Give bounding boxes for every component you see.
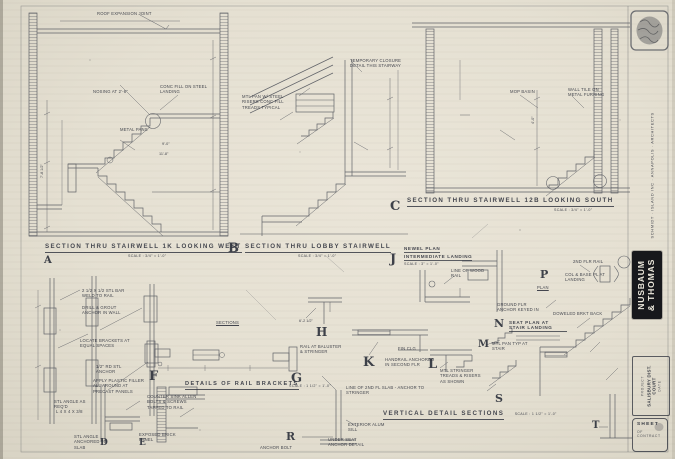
section-letter-a: A bbox=[44, 255, 52, 266]
architects-credit: SCHMIDT · ISLAND INC · ANNAPOLIS · ARCHI… bbox=[650, 127, 655, 239]
note-counter-sink: COUNTER SINK ALLEN BOLTS & SCREWS TAPPED… bbox=[147, 394, 199, 410]
dim-a-run2: 11'-8" bbox=[159, 152, 168, 156]
detail-letter-r: R bbox=[286, 430, 295, 443]
note-wall-tile: WALL TILE ON METAL FURRING bbox=[568, 87, 614, 98]
note-metal-pans: METAL PANS bbox=[120, 127, 154, 132]
note-rail-baluster: RAIL AT BALUSTER & STRINGER bbox=[300, 344, 342, 355]
note-locate-brackets: LOCATE BRACKETS AT EQUAL SPACES bbox=[80, 338, 130, 349]
section-letter-b: B bbox=[228, 241, 239, 256]
detail-letter-h: H bbox=[316, 325, 327, 339]
project-label: PROJECT bbox=[641, 358, 645, 414]
detail-letter-n: N bbox=[494, 317, 504, 330]
note-stl-bar: 2 1/2 x 1/2 STL BAR WELD TO RAIL bbox=[82, 288, 132, 299]
project-block: PROJECT SALISBURY DIST. COURT DATE bbox=[632, 356, 670, 416]
drawing-sheet: A SECTION THRU STAIRWELL 1K LOOKING WEST… bbox=[0, 0, 675, 459]
note-exposed-brick: EXPOSED BRICK PANEL bbox=[139, 432, 177, 443]
note-sections-label: SECTIONS bbox=[216, 320, 248, 325]
note-plastic-filler: APPLY PLASTIC FILLER ALL AROUND AT PRECA… bbox=[93, 378, 149, 394]
note-angle-size: L 4 x 4 x 3/8 bbox=[56, 409, 90, 414]
vertical-details-title: VERTICAL DETAIL SECTIONS bbox=[383, 410, 504, 420]
note-mtl-stringer: MTL STRINGER TREADS & RISERS AS SHOWN bbox=[440, 368, 482, 384]
dim-c-height: 4'-0" bbox=[531, 116, 535, 124]
detail-letter-m: M bbox=[478, 339, 489, 350]
section-b-title: SECTION THRU LOBBY STAIRWELL bbox=[245, 243, 391, 253]
newel-plan-title-1: NEWEL PLAN bbox=[404, 246, 440, 253]
s-detail-linework bbox=[487, 360, 516, 391]
section-a-linework bbox=[29, 13, 228, 236]
note-conc-fill: CONC FILL ON STEEL LANDING bbox=[160, 84, 212, 95]
scan-edge-shadow bbox=[0, 0, 3, 459]
section-b-scale: SCALE : 3/4" = 1'-0" bbox=[298, 254, 336, 258]
note-anchor-bolt: ANCHOR BOLT bbox=[260, 445, 300, 450]
note-drill-grout: DRILL & GROUT ANCHOR IN WALL bbox=[82, 305, 130, 316]
note-mtl-pan-stair: MTL PAN TYP AT STAIR bbox=[492, 341, 528, 352]
note-nosing: NOSING AT 2'-6" bbox=[93, 89, 135, 94]
note-under-seat: UNDER SEAT ANCHOR DETAIL bbox=[328, 437, 374, 448]
note-alum-sill: EXTERIOR ALUM SILL bbox=[348, 422, 388, 433]
rail-bracket-detail-linework bbox=[147, 341, 297, 371]
note-doweled: DOWELED BRKT BACK bbox=[553, 311, 615, 316]
vertical-details-scale: SCALE : 1 1/2" = 1'-0" bbox=[515, 412, 557, 416]
sheet-label: SHEET bbox=[637, 422, 667, 427]
note-line-2nd-fl: LINE OF 2ND FL SLAB - ANCHOR TO STRINGER bbox=[346, 385, 428, 396]
note-mop-basin: MOP BASIN bbox=[510, 89, 540, 94]
note-col-base: COL & BASE PL AT LANDING bbox=[565, 272, 609, 283]
firm-nameplate: NUSBAUM & THOMAS bbox=[632, 251, 662, 319]
section-c-linework bbox=[412, 23, 630, 196]
newel-plan-scale: SCALE : 3" = 1'-0" bbox=[404, 262, 439, 266]
note-2nd-flr-rail: 2ND FLR RAIL bbox=[573, 259, 611, 264]
note-fin-clg: FIN CLG bbox=[398, 346, 420, 351]
section-c-scale: SCALE : 3/4" = 1'-0" bbox=[554, 208, 592, 212]
note-angle-anchored: STL ANGLE ANCHORED TO SLAB bbox=[74, 434, 118, 450]
detail-letter-s: S bbox=[495, 392, 503, 405]
note-roof-joint: ROOF EXPANSION JOINT bbox=[97, 11, 177, 16]
t-detail-linework bbox=[599, 394, 632, 438]
note-wood-rail: LINE OF WOOD RAIL bbox=[451, 268, 489, 279]
vertical-details-title-row: VERTICAL DETAIL SECTIONS SCALE : 1 1/2" … bbox=[383, 402, 557, 420]
seat-plan-title: SEAT PLAN AT STAIR LANDING bbox=[509, 320, 567, 332]
dim-h-width: 6'-2 1/2" bbox=[299, 319, 313, 323]
dim-a-height: 7'-8 1/2" bbox=[40, 164, 44, 178]
note-rd-anchor: 1/2" RD STL ANCHOR bbox=[96, 364, 138, 375]
detail-letter-k: K bbox=[363, 355, 374, 370]
dim-a-run: 9'-0" bbox=[162, 142, 170, 146]
rail-brackets-title: DETAILS OF RAIL BRACKETS bbox=[185, 381, 299, 390]
approval-stamp bbox=[631, 11, 668, 50]
detail-letter-t: T bbox=[592, 420, 599, 431]
section-b-linework bbox=[240, 57, 408, 236]
note-handrail-anchor: HANDRAIL ANCHORED IN SECOND FLR bbox=[385, 357, 440, 368]
section-letter-c: C bbox=[390, 199, 400, 214]
section-a-scale: SCALE : 3/4" = 1'-0" bbox=[128, 254, 166, 258]
date-label: DATE bbox=[658, 358, 662, 414]
note-ground-anchor: GROUND FLR ANCHOR KEYED IN bbox=[497, 302, 541, 313]
rail-elevation-linework bbox=[35, 276, 205, 442]
detail-letter-g: G bbox=[291, 371, 302, 386]
sheet-of-label: OF CONTRACT bbox=[637, 430, 667, 438]
newel-plan-title-2: INTERMEDIATE LANDING bbox=[404, 254, 472, 261]
detail-letter-f: F bbox=[149, 369, 158, 384]
note-mtl-pan-b: MTL PAN W/ STEEL RISERS CONC FILL TREADS… bbox=[242, 94, 292, 110]
sheet-number-block: SHEET OF CONTRACT bbox=[632, 418, 668, 452]
project-name: SALISBURY DIST. COURT bbox=[646, 358, 656, 414]
note-plan-label: PLAN bbox=[537, 285, 557, 290]
firm-name-line2: & THOMAS bbox=[647, 251, 657, 319]
note-temp-closure: TEMPORARY CLOSURE DETAIL THIS STAIRWAY bbox=[350, 58, 414, 69]
detail-letter-j: J bbox=[390, 252, 396, 267]
section-a-title: SECTION THRU STAIRWELL 1K LOOKING WEST bbox=[45, 243, 242, 253]
detail-letter-p: P bbox=[540, 268, 548, 281]
section-c-title: SECTION THRU STAIRWELL 12B LOOKING SOUTH bbox=[407, 197, 614, 207]
